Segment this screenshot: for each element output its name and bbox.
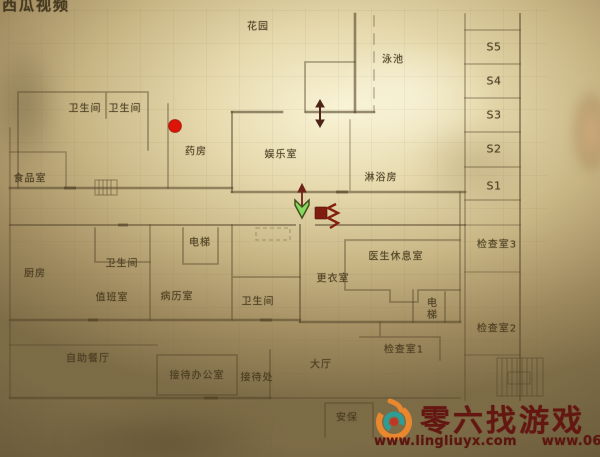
room-label: 卫生间 [242,293,275,308]
room-label: 检查室2 [477,320,517,335]
room-label: 检查室1 [384,341,424,356]
room-label: 更衣室 [317,270,350,285]
site-url-right: www.06zyx.com [542,434,600,449]
room-label: S2 [487,143,502,156]
two-way-arrow-icon [316,100,324,127]
room-label: 值班室 [96,289,129,304]
room-label: 药房 [185,143,207,158]
room-label: 卫生间 [69,100,102,115]
screenshot-root: 花园泳池S5S4S3S2S1卫生间卫生间药房娱乐室食品室淋浴房电梯检查室3医生休… [0,0,600,457]
room-label: 接待处 [241,369,274,384]
room-label: 卫生间 [106,255,139,270]
room-label: 花园 [247,18,269,33]
room-label: S1 [487,180,502,193]
room-label: 接待办公室 [170,367,225,382]
room-label: 娱乐室 [265,146,298,161]
room-label: 淋浴房 [365,169,398,184]
room-label: 安保 [336,409,358,424]
marker-square-icon [315,207,327,219]
room-label: 厨房 [24,265,46,280]
room-label: 医生休息室 [369,248,424,263]
room-label: 电梯 [189,234,211,249]
dashed-box [256,228,290,240]
room-label: 卫生间 [109,100,142,115]
site-urls: www.lingliuyx.com www.06zyx.com [374,434,600,449]
player-position-dot-icon [169,120,182,133]
room-label: S3 [487,109,502,122]
room-label: 自助餐厅 [66,350,110,365]
room-label: 病历室 [161,288,194,303]
room-label: S5 [487,41,502,54]
room-label: S4 [487,75,502,88]
map-drawing [0,0,600,457]
room-label: 大厅 [310,356,332,371]
site-url-left: www.lingliuyx.com [374,434,517,449]
room-label: 检查室3 [477,236,517,251]
room-label: 电梯 [423,297,438,321]
room-label: 食品室 [14,170,47,185]
site-watermark: 零六找游戏 www.lingliuyx.com www.06zyx.com [368,392,600,457]
platform-watermark-text: 西瓜视频 [2,0,70,15]
room-label: 泳池 [382,51,404,66]
